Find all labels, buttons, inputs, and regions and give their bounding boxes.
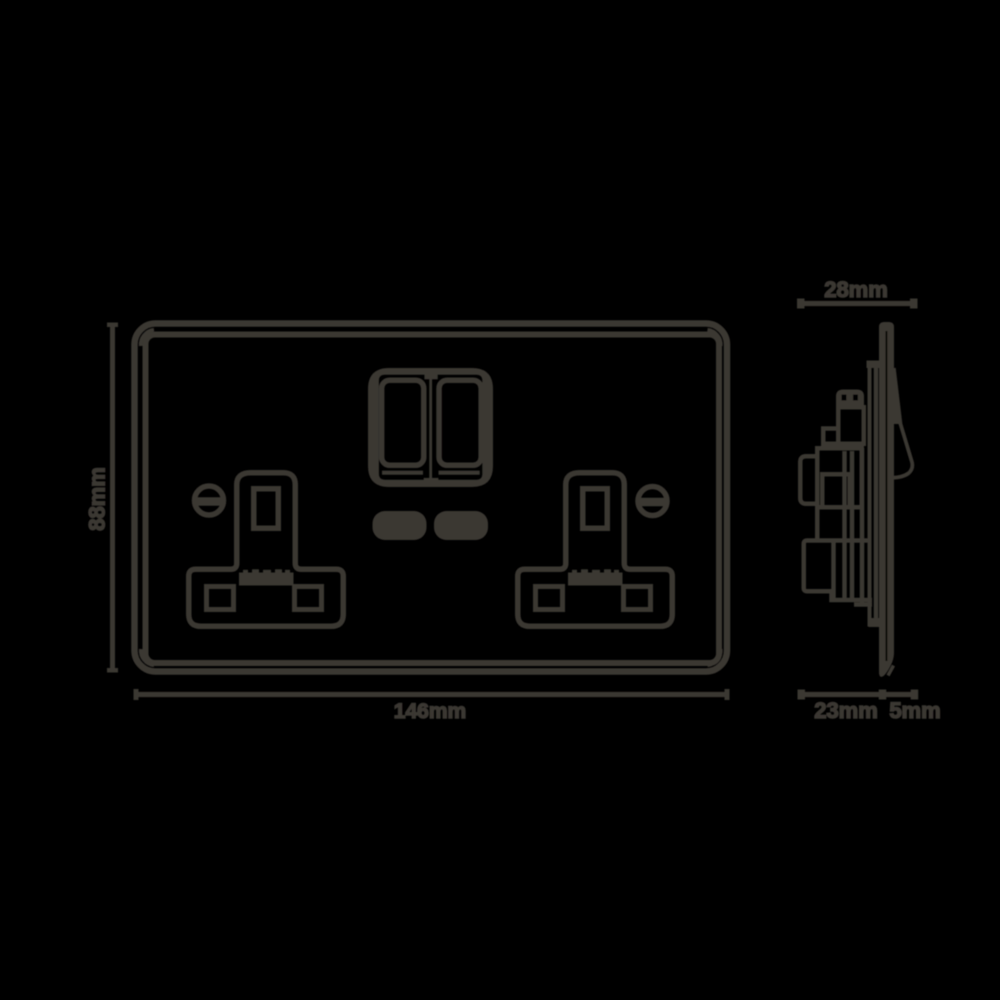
- svg-text:23mm: 23mm: [814, 698, 878, 723]
- svg-text:146mm: 146mm: [394, 700, 466, 723]
- svg-text:88mm: 88mm: [85, 467, 110, 531]
- svg-text:28mm: 28mm: [824, 277, 888, 302]
- svg-text:5mm: 5mm: [889, 698, 940, 723]
